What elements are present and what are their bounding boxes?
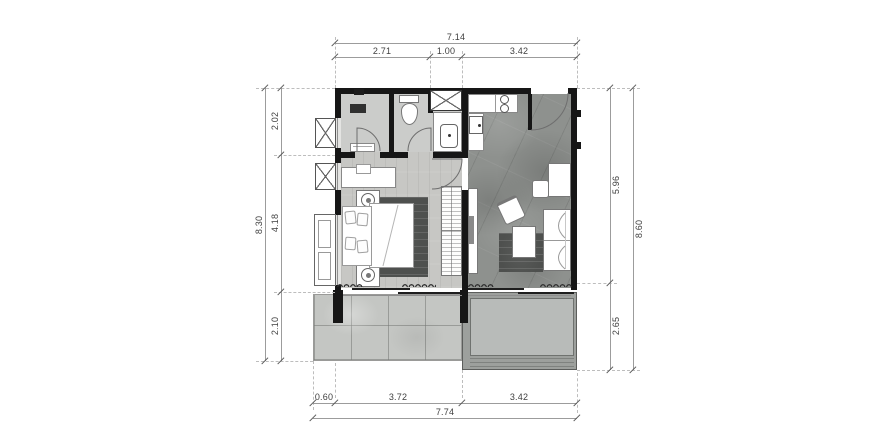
dim-tick: [573, 414, 580, 421]
dim-label-left-seg2: 4.18: [270, 214, 280, 232]
wall-right-nub: [577, 142, 581, 149]
sliding-door-panel: [398, 292, 460, 294]
ac-unit-box: [315, 118, 336, 148]
dim-line-bottom-overall: [313, 418, 577, 419]
cooktop-burner: [500, 95, 509, 104]
wall-right-nub: [577, 110, 581, 117]
extension-line: [256, 88, 335, 89]
pool-step: [470, 358, 574, 359]
pool: [470, 298, 574, 356]
sofa-divider: [544, 240, 570, 241]
extension-line: [274, 292, 335, 293]
shower-niche: [350, 104, 366, 113]
basin-faucet: [448, 134, 451, 137]
extension-line: [274, 155, 335, 156]
shower-head: [354, 89, 364, 95]
entrance-door-leaf: [528, 94, 532, 130]
sink-faucet: [478, 124, 481, 127]
sliding-door-panel: [468, 288, 524, 290]
dim-label-top-seg1: 2.71: [373, 46, 391, 56]
cooktop-burner: [500, 104, 509, 113]
sliding-door-panel: [518, 292, 574, 294]
dim-line-top-overall: [335, 43, 577, 44]
living-desk: [548, 163, 571, 197]
extension-line: [335, 363, 336, 398]
dim-label-right-seg2: 2.65: [611, 317, 621, 335]
shower-bench-line: [353, 146, 372, 147]
extension-line: [335, 37, 336, 88]
dim-label-left-seg1: 2.02: [270, 112, 280, 130]
sofa-back-line: [565, 211, 566, 269]
sliding-door-sill: [468, 295, 571, 296]
planter-inner: [318, 252, 331, 280]
dim-line-top-segments: [335, 57, 577, 58]
coffee-table: [512, 226, 536, 258]
sliding-door-panel: [352, 288, 410, 290]
wall-right: [571, 88, 577, 290]
pillow: [356, 213, 368, 227]
sliding-door-sill: [343, 295, 462, 296]
dim-line-left-inner: [281, 88, 282, 361]
cooktop-divider: [495, 95, 496, 112]
dim-label-bottom-overall: 7.74: [436, 407, 454, 417]
pillow: [345, 237, 357, 251]
wardrobe-rail: [451, 187, 452, 275]
dim-line-bottom-segments: [313, 403, 577, 404]
dim-label-left-overall: 8.30: [254, 216, 264, 234]
dim-label-right-overall: 8.60: [634, 220, 644, 238]
dim-label-left-seg3: 2.10: [270, 317, 280, 335]
wall-bath-bottom-a: [335, 152, 355, 158]
dim-label-bottom-seg1: 0.60: [315, 392, 333, 402]
dim-label-bottom-seg2: 3.72: [389, 392, 407, 402]
wall-terrace-stub-left: [333, 290, 343, 323]
extension-line: [577, 37, 578, 88]
curtain: [402, 281, 436, 287]
pool-step: [470, 362, 574, 363]
curtain: [540, 281, 572, 287]
pool-step: [470, 366, 574, 367]
dim-label-top-seg3: 3.42: [510, 46, 528, 56]
pillow: [344, 210, 356, 224]
wall-shower-divider: [389, 94, 394, 152]
curtain: [468, 281, 494, 287]
ac-unit-box: [315, 163, 336, 190]
bedroom-stool: [356, 164, 371, 174]
kitchen-counter-top: [468, 94, 518, 113]
toilet-tank: [399, 95, 419, 103]
bed-duvet: [369, 203, 414, 268]
dim-label-bottom-seg3: 3.42: [510, 392, 528, 402]
extension-line: [462, 370, 463, 398]
dim-label-top-overall: 7.14: [447, 32, 465, 42]
tv-screen: [469, 216, 474, 244]
bedside-lamp: [361, 268, 375, 282]
wall-bath-bottom-b: [380, 152, 408, 158]
floor-plan: 7.14 2.71 1.00 3.42 2.02 4.18 2.10 8.30 …: [0, 0, 890, 440]
pillow: [356, 240, 368, 254]
wall-bath-bottom-c: [433, 152, 462, 158]
extension-line: [577, 283, 617, 284]
dim-label-right-seg1: 5.96: [611, 176, 621, 194]
dim-line-left-outer: [265, 88, 266, 361]
closet-box: [430, 90, 462, 111]
shower-bench: [350, 143, 375, 152]
desk-chair: [532, 180, 549, 198]
dim-label-top-seg2: 1.00: [437, 46, 455, 56]
planter-inner: [318, 220, 331, 248]
extension-line: [577, 373, 578, 413]
curtain: [337, 281, 363, 287]
